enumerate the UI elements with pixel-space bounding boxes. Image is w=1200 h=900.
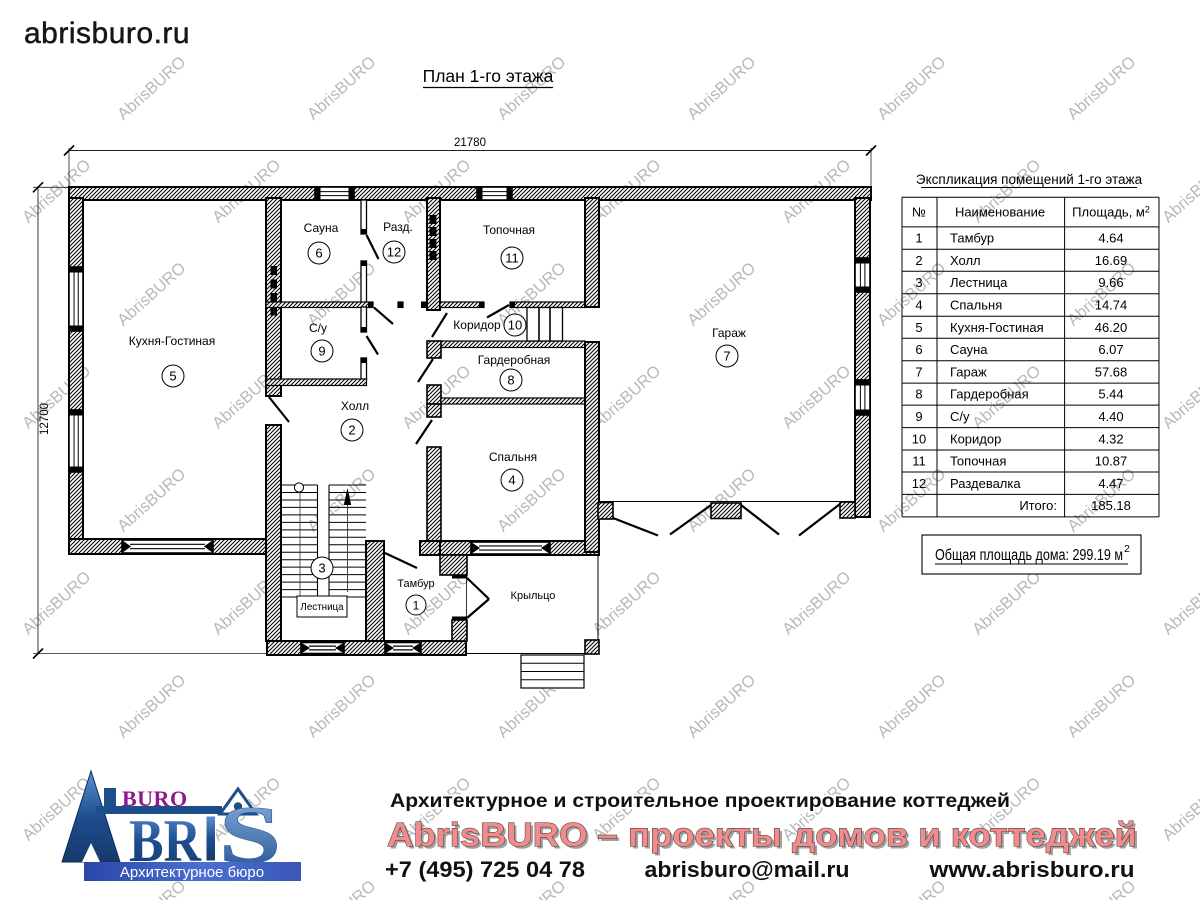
svg-text:3: 3 (915, 275, 922, 290)
svg-text:Кухня-Гостиная: Кухня-Гостиная (129, 334, 215, 348)
svg-text:7: 7 (723, 349, 730, 364)
svg-text:abrisburo.ru: abrisburo.ru (24, 17, 190, 50)
svg-text:AbrisBURO – проекты домов и ко: AbrisBURO – проекты домов и коттеджей (387, 816, 1137, 853)
svg-text:Кухня-Гостиная: Кухня-Гостиная (950, 320, 1044, 335)
svg-text:AbrisBURO: AbrisBURO (114, 465, 190, 536)
svg-text:AbrisBURO: AbrisBURO (1159, 362, 1200, 433)
svg-text:Лестница: Лестница (950, 275, 1008, 290)
svg-text:www.abrisburo.ru: www.abrisburo.ru (928, 857, 1134, 882)
svg-text:AbrisBURO: AbrisBURO (684, 259, 760, 330)
svg-text:1: 1 (915, 231, 922, 246)
svg-text:Тамбур: Тамбур (950, 231, 994, 246)
svg-text:abrisburo@mail.ru: abrisburo@mail.ru (645, 857, 850, 882)
svg-text:Коридор: Коридор (950, 431, 1001, 446)
svg-text:Архитектурное и строительное п: Архитектурное и строительное проектирова… (390, 791, 1010, 812)
svg-text:AbrisBURO: AbrisBURO (304, 259, 380, 330)
svg-text:AbrisBURO: AbrisBURO (494, 53, 570, 124)
svg-text:План 1-го этажа: План 1-го этажа (423, 66, 554, 86)
svg-text:AbrisBURO: AbrisBURO (304, 877, 380, 900)
svg-text:10.87: 10.87 (1095, 454, 1128, 469)
svg-text:4.47: 4.47 (1098, 476, 1123, 491)
svg-text:AbrisBURO: AbrisBURO (304, 671, 380, 742)
svg-text:Разд.: Разд. (383, 220, 413, 234)
svg-text:AbrisBURO: AbrisBURO (779, 362, 855, 433)
svg-text:AbrisBURO: AbrisBURO (684, 465, 760, 536)
svg-text:46.20: 46.20 (1095, 320, 1128, 335)
svg-text:№: № (912, 205, 926, 220)
svg-text:Общая площадь дома: 299.19 м: Общая площадь дома: 299.19 м (935, 547, 1123, 564)
svg-text:2: 2 (348, 423, 355, 438)
svg-text:AbrisBURO: AbrisBURO (684, 53, 760, 124)
svg-text:AbrisBURO: AbrisBURO (684, 671, 760, 742)
svg-text:6: 6 (315, 246, 322, 261)
svg-text:AbrisBURO: AbrisBURO (779, 568, 855, 639)
svg-text:Топочная: Топочная (483, 223, 535, 237)
svg-text:С/у: С/у (950, 409, 970, 424)
svg-text:2: 2 (1124, 543, 1130, 555)
svg-text:С/у: С/у (309, 321, 327, 335)
svg-text:AbrisBURO: AbrisBURO (304, 53, 380, 124)
svg-text:Гараж: Гараж (950, 365, 987, 380)
svg-text:12: 12 (387, 245, 401, 260)
svg-text:10: 10 (912, 431, 926, 446)
svg-text:5: 5 (915, 320, 922, 335)
svg-text:AbrisBURO: AbrisBURO (1159, 774, 1200, 845)
svg-text:AbrisBURO: AbrisBURO (874, 53, 950, 124)
svg-text:Архитектурное бюро: Архитектурное бюро (120, 864, 264, 881)
svg-text:4: 4 (915, 298, 922, 313)
svg-text:21780: 21780 (454, 137, 486, 149)
svg-text:Крыльцо: Крыльцо (511, 590, 556, 602)
svg-text:AbrisBURO: AbrisBURO (589, 568, 665, 639)
svg-text:9: 9 (915, 409, 922, 424)
svg-text:Топочная: Топочная (950, 454, 1006, 469)
svg-text:Площадь, м2: Площадь, м2 (1072, 205, 1150, 220)
svg-text:Гардеробная: Гардеробная (950, 387, 1029, 402)
svg-text:Экспликация помещений 1-го эта: Экспликация помещений 1-го этажа (916, 172, 1143, 187)
svg-text:2: 2 (915, 253, 922, 268)
svg-text:4.64: 4.64 (1098, 231, 1123, 246)
svg-text:5: 5 (169, 369, 176, 384)
svg-text:8: 8 (915, 387, 922, 402)
svg-text:Итого:: Итого: (1019, 498, 1057, 513)
svg-text:5.44: 5.44 (1098, 387, 1123, 402)
svg-text:11: 11 (912, 454, 926, 469)
svg-text:16.69: 16.69 (1095, 253, 1128, 268)
svg-text:BURO: BURO (122, 786, 188, 811)
svg-text:AbrisBURO: AbrisBURO (589, 362, 665, 433)
svg-text:AbrisBURO: AbrisBURO (1159, 568, 1200, 639)
svg-text:AbrisBURO: AbrisBURO (19, 568, 95, 639)
svg-text:Гараж: Гараж (712, 326, 746, 340)
svg-text:6: 6 (915, 342, 922, 357)
svg-text:AbrisBURO: AbrisBURO (114, 53, 190, 124)
svg-text:8: 8 (507, 373, 514, 388)
svg-text:AbrisBURO: AbrisBURO (969, 568, 1045, 639)
svg-text:Лестница: Лестница (300, 602, 344, 613)
svg-text:9: 9 (318, 344, 325, 359)
svg-text:Наименование: Наименование (955, 205, 1045, 220)
svg-text:12700: 12700 (39, 403, 51, 435)
svg-text:1: 1 (413, 599, 420, 613)
svg-text:9.66: 9.66 (1098, 275, 1123, 290)
svg-text:4.40: 4.40 (1098, 409, 1123, 424)
svg-text:Сауна: Сауна (950, 342, 988, 357)
svg-text:185.18: 185.18 (1091, 498, 1131, 513)
svg-text:Спальня: Спальня (950, 298, 1002, 313)
svg-text:Тамбур: Тамбур (397, 578, 434, 590)
svg-text:3: 3 (318, 561, 325, 576)
svg-text:Коридор: Коридор (453, 318, 501, 332)
svg-text:AbrisBURO: AbrisBURO (114, 259, 190, 330)
svg-text:11: 11 (505, 251, 519, 266)
svg-text:Холл: Холл (950, 253, 981, 268)
svg-text:7: 7 (915, 365, 922, 380)
svg-text:14.74: 14.74 (1095, 298, 1128, 313)
svg-text:Раздевалка: Раздевалка (950, 476, 1021, 491)
svg-text:Спальня: Спальня (489, 450, 537, 464)
svg-text:4.32: 4.32 (1098, 431, 1123, 446)
svg-text:AbrisBURO: AbrisBURO (1159, 156, 1200, 227)
svg-text:AbrisBURO: AbrisBURO (1064, 53, 1140, 124)
svg-text:12: 12 (912, 476, 926, 491)
svg-text:AbrisBURO: AbrisBURO (114, 671, 190, 742)
svg-text:57.68: 57.68 (1095, 365, 1128, 380)
svg-text:Холл: Холл (341, 399, 369, 413)
svg-text:+7 (495) 725 04 78: +7 (495) 725 04 78 (385, 857, 585, 882)
svg-text:6.07: 6.07 (1098, 342, 1123, 357)
svg-text:10: 10 (508, 318, 522, 333)
svg-text:Гардеробная: Гардеробная (478, 353, 551, 367)
svg-text:4: 4 (508, 473, 515, 488)
svg-text:Сауна: Сауна (304, 221, 339, 235)
svg-text:AbrisBURO: AbrisBURO (874, 671, 950, 742)
svg-text:AbrisBURO: AbrisBURO (1064, 671, 1140, 742)
